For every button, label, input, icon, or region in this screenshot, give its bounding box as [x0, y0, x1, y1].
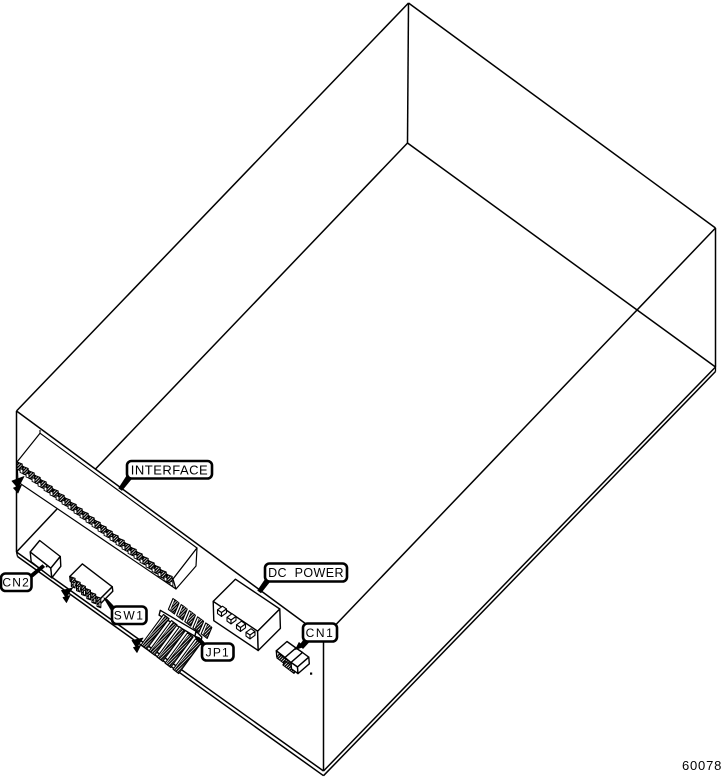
svg-text:CN1: CN1 [306, 626, 335, 640]
svg-text:CN2: CN2 [2, 576, 30, 590]
svg-text:JP1: JP1 [206, 645, 230, 659]
svg-text:SW1: SW1 [114, 609, 145, 623]
svg-text:DC POWER: DC POWER [268, 566, 344, 580]
svg-text:60078: 60078 [682, 758, 722, 773]
svg-text:INTERFACE: INTERFACE [131, 462, 208, 477]
